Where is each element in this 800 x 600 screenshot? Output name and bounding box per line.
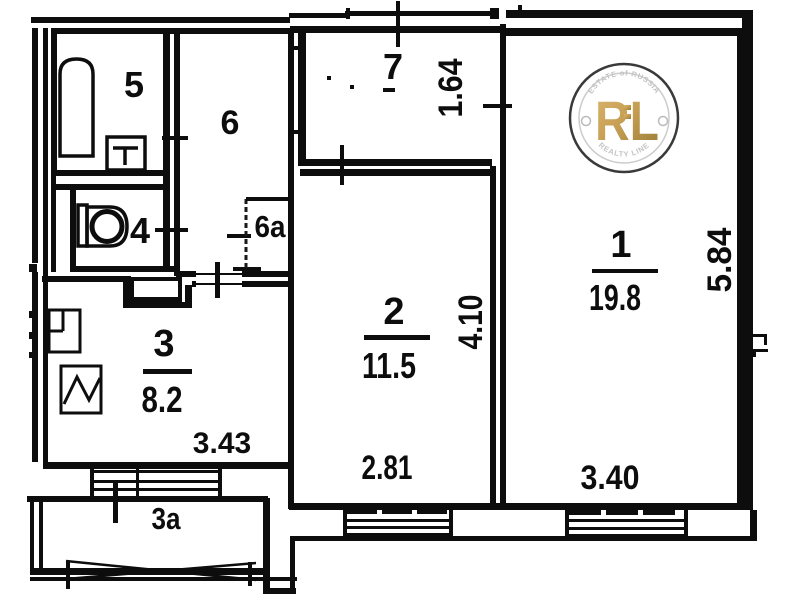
svg-text:2: 2 <box>383 291 404 333</box>
svg-text:2.81: 2.81 <box>362 449 413 487</box>
svg-text:4.10: 4.10 <box>452 295 490 350</box>
svg-text:6: 6 <box>221 104 240 142</box>
svg-text:3.43: 3.43 <box>193 427 251 460</box>
svg-text:1: 1 <box>610 224 631 266</box>
svg-text:11.5: 11.5 <box>362 345 416 386</box>
svg-text:3.40: 3.40 <box>581 459 640 497</box>
svg-text:1.64: 1.64 <box>432 58 470 117</box>
svg-text:7: 7 <box>383 46 403 87</box>
svg-text:5: 5 <box>124 64 144 105</box>
svg-text:3: 3 <box>153 323 174 365</box>
svg-text:3а: 3а <box>152 501 182 536</box>
svg-text:5.84: 5.84 <box>701 227 739 292</box>
svg-text:4: 4 <box>130 210 150 251</box>
svg-text:19.8: 19.8 <box>589 277 641 318</box>
svg-text:8.2: 8.2 <box>142 379 183 420</box>
svg-text:6а: 6а <box>255 209 287 244</box>
svg-text:RL: RL <box>595 89 659 152</box>
